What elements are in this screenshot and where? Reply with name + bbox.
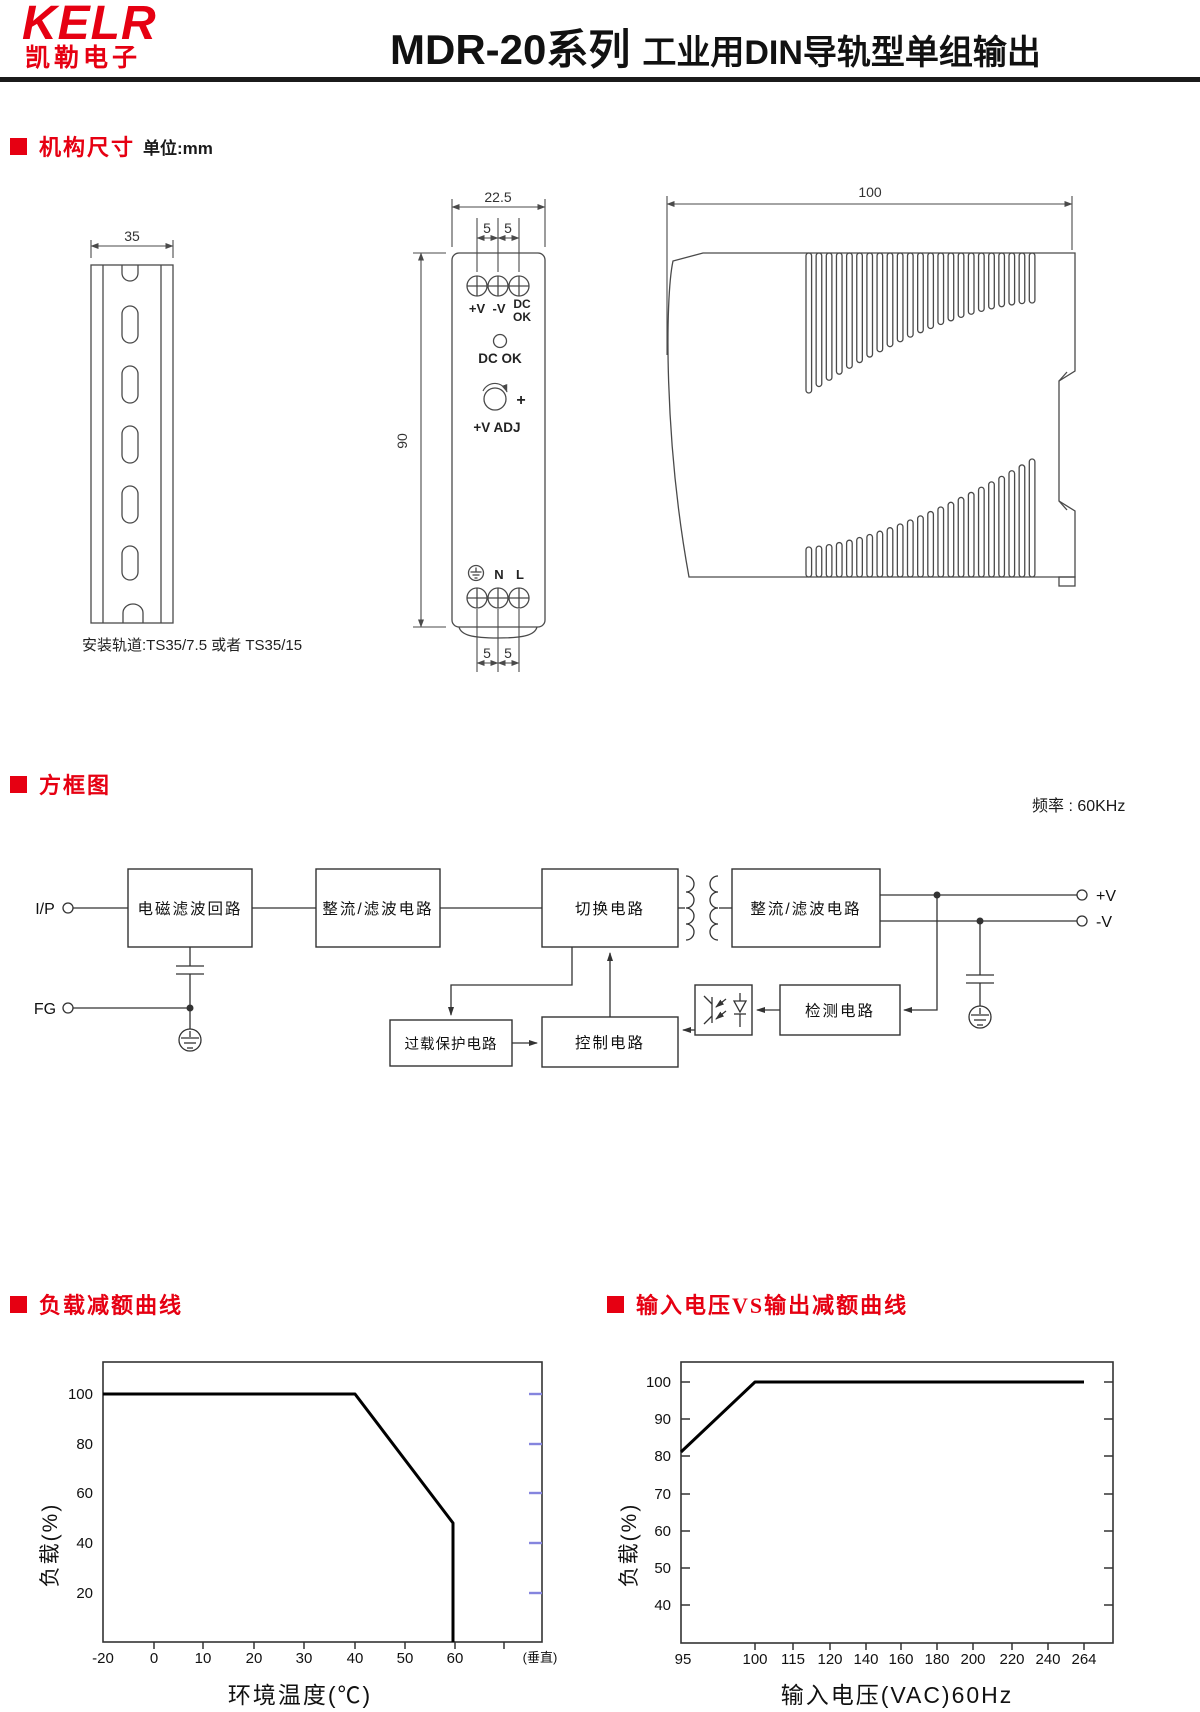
side-view-vents [806,253,1035,577]
rectifier2-box-label: 整流/滤波电路 [750,900,861,918]
vent-slot [968,253,974,314]
y-tick: 20 [76,1585,93,1602]
section-marker-icon [10,138,27,155]
front-height-dim: 90 [394,433,410,449]
brand-logo: KELR [22,0,157,48]
x-tick: 160 [888,1651,913,1668]
x-tick: 50 [397,1650,414,1667]
derating-chart: 100 80 60 40 20 -20 0 10 20 30 40 [39,1362,557,1708]
x-tick: 60 [447,1650,464,1667]
x-tick: 240 [1035,1651,1060,1668]
y-tick: 80 [76,1436,93,1453]
x-tick: -20 [92,1650,114,1667]
page-title-desc: 工业用DIN导轨型单组输出 [642,34,1041,72]
vent-slot [806,547,812,577]
frequency-note: 频率 : 60KHz [1032,792,1125,816]
vent-slot [918,253,924,333]
output-terminals [467,276,529,296]
din-rail-drawing: 35 安装轨道:TS35/7.5 或者 TS35/15 [82,228,302,654]
section-mechanical-unit: 单位:mm [143,134,213,159]
vent-slot [867,534,873,577]
y-tick: 60 [654,1523,671,1540]
x-tick: 264 [1071,1651,1096,1668]
vent-slot [877,531,883,577]
vent-slot [816,546,822,577]
vent-slot [857,537,863,577]
vent-slot [989,253,995,309]
section-mechanical: 机构尺寸 单位:mm [10,130,213,162]
y-tick: 80 [654,1448,671,1465]
vent-slot [1009,253,1015,305]
vent-slot [826,253,832,380]
terminal-label-n: N [494,567,503,582]
vent-slot [867,253,873,357]
rectifier1-box-label: 整流/滤波电路 [322,900,433,918]
y-tick: 100 [68,1386,93,1403]
side-depth-dim: 100 [858,184,882,200]
vent-slot [958,253,964,317]
section-input-derating-label: 输入电压VS输出减额曲线 [636,1288,908,1320]
input-derating-curve [681,1382,1084,1452]
detect-box-label: 检测电路 [805,1002,875,1020]
front-view-drawing: 22.5 5 5 +V -V DC OK DC OK [394,189,545,672]
vent-slot [908,520,914,577]
adj-label: +V ADJ [473,420,520,435]
x-tick: 30 [296,1650,313,1667]
x-tick: 20 [246,1650,263,1667]
fg-port-label: FG [34,1001,56,1018]
section-marker-icon [607,1296,624,1313]
brand-logo-subtitle: 凯勒电子 [25,46,141,71]
y-tick: 90 [654,1411,671,1428]
vent-slot [847,540,853,577]
x-tick: 40 [347,1650,364,1667]
page-title-model: MDR-20系列 [390,26,630,73]
overload-box-label: 过载保护电路 [405,1036,498,1053]
voltage-adjust-pot [484,388,506,410]
vent-slot [999,476,1005,577]
x-tick: 0 [150,1650,158,1667]
section-derating: 负载减额曲线 [10,1288,183,1320]
vent-slot [806,253,812,393]
output-pos-label: +V [1096,888,1116,905]
input-derating-chart: 100 90 80 70 60 50 40 [618,1362,1113,1708]
terminal-label-dc: DC [513,297,531,311]
y-tick-marks [681,1382,1113,1605]
y-tick: 40 [76,1535,93,1552]
y-tick: 60 [76,1485,93,1502]
vent-slot [897,253,903,342]
vent-slot [816,253,822,387]
vent-slot [1019,465,1025,577]
section-marker-icon [10,776,27,793]
y-tick: 70 [654,1486,671,1503]
vent-slot [1029,459,1035,577]
y-tick: 100 [646,1374,671,1391]
terminal-label-ok: OK [513,310,531,324]
section-block-label: 方框图 [39,768,111,800]
control-box-label: 控制电路 [575,1034,645,1052]
vent-slot [979,253,985,311]
derating-curve [103,1394,453,1642]
vent-slot [1029,253,1035,303]
vent-slot [989,482,995,577]
x-tick: 95 [675,1651,692,1668]
vent-slot [887,528,893,577]
switching-box-label: 切换电路 [575,900,645,918]
vent-slot [826,545,832,577]
side-view-drawing: 100 [667,184,1075,586]
x-tick: 115 [781,1651,805,1668]
vent-slot [836,253,842,374]
section-block-diagram: 方框图 [10,768,111,800]
input-ground-icon [179,1029,201,1051]
led-label: DC OK [478,351,522,366]
rail-width-dim: 35 [124,228,140,244]
pitch-bottom-dim-2: 5 [504,645,512,661]
vent-slot [938,253,944,325]
pitch-bottom-dim-1: 5 [483,645,491,661]
page-title: MDR-20系列工业用DIN导轨型单组输出 [390,16,1041,77]
terminal-label-l: L [516,567,524,582]
datasheet-page: KELR 凯勒电子 MDR-20系列工业用DIN导轨型单组输出 机构尺寸 单位:… [0,0,1200,1712]
input-capacitor-icon [176,947,204,1029]
x-tick-marks [755,1643,1084,1650]
vent-slot [857,253,863,363]
rail-caption: 安装轨道:TS35/7.5 或者 TS35/15 [82,637,302,654]
dc-ok-led [494,335,507,348]
terminal-label-pos: +V [469,301,486,316]
vent-slot [938,507,944,577]
pitch-top-dim-1: 5 [483,220,491,236]
output-ground-icon [969,1006,991,1028]
vent-slot [1019,253,1025,304]
vent-slot [958,497,964,577]
header-rule [0,77,1200,82]
x-axis-note: (垂直) [523,1650,558,1665]
y-axis-label: 负载(%) [618,1503,641,1588]
charts: 100 80 60 40 20 -20 0 10 20 30 40 [0,1330,1200,1712]
x-tick: 200 [960,1651,985,1668]
vent-slot [908,253,914,337]
x-axis-label: 环境温度(℃) [228,1682,372,1708]
y-axis-label: 负载(%) [39,1503,62,1588]
vent-slot [836,543,842,577]
vent-slot [1009,471,1015,577]
vent-slot [897,524,903,577]
transformer-icon [678,876,732,940]
adj-plus-sign: + [516,392,525,409]
x-tick: 140 [853,1651,878,1668]
x-tick: 10 [195,1650,212,1667]
input-terminals [467,588,529,608]
terminal-label-neg: -V [493,301,506,316]
y-tick: 50 [654,1560,671,1577]
x-tick: 100 [742,1651,767,1668]
vent-slot [928,253,934,328]
ground-terminal-icon [469,566,484,581]
x-tick: 220 [999,1651,1024,1668]
section-input-derating: 输入电压VS输出减额曲线 [607,1288,908,1320]
vent-slot [948,502,954,577]
mechanical-drawings: 35 安装轨道:TS35/7.5 或者 TS35/15 22.5 5 5 [0,160,1200,680]
section-mechanical-label: 机构尺寸 [39,130,135,162]
vent-slot [968,492,974,577]
vent-slot [999,253,1005,307]
section-derating-label: 负载减额曲线 [39,1288,183,1320]
vent-slot [979,487,985,577]
vent-slot [928,512,934,577]
input-port-label: I/P [35,901,55,918]
x-tick: 180 [924,1651,949,1668]
y-tick: 40 [654,1597,671,1614]
block-diagram: I/P 电磁滤波回路 整流/滤波电路 切换电路 整流/滤波电路 +V -V [0,840,1200,1140]
vent-slot [847,253,853,368]
output-capacitor-icon [966,921,994,1006]
vent-slot [948,253,954,321]
section-marker-icon [10,1296,27,1313]
optocoupler-icon [695,985,752,1035]
x-tick: 120 [817,1651,842,1668]
emi-filter-box-label: 电磁滤波回路 [137,900,242,918]
vent-slot [918,516,924,577]
output-neg-label: -V [1096,914,1112,931]
vent-slot [887,253,893,347]
pitch-top-dim-2: 5 [504,220,512,236]
x-axis-label: 输入电压(VAC)60Hz [781,1682,1014,1708]
front-width-dim: 22.5 [484,189,511,205]
vent-slot [877,253,883,352]
